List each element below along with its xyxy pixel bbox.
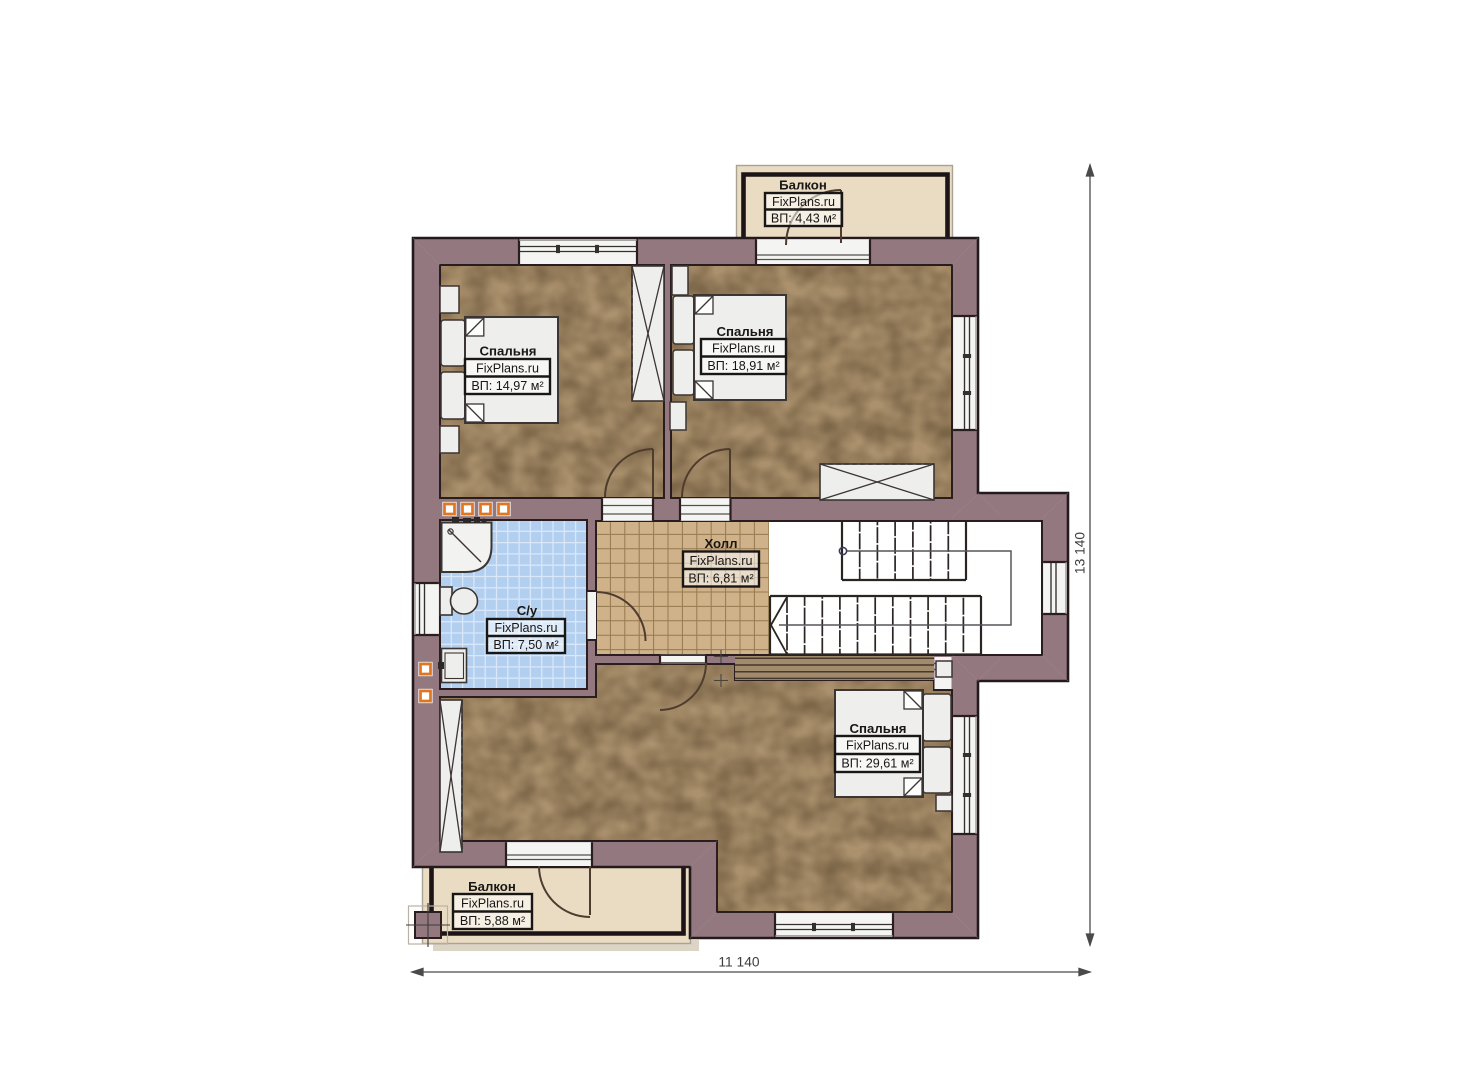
- svg-text:13 140: 13 140: [1073, 532, 1088, 575]
- svg-text:FixPlans.ru: FixPlans.ru: [461, 896, 524, 910]
- svg-text:ВП: 7,50 м²: ВП: 7,50 м²: [493, 638, 558, 652]
- svg-text:FixPlans.ru: FixPlans.ru: [495, 621, 558, 635]
- svg-text:FixPlans.ru: FixPlans.ru: [476, 361, 539, 375]
- svg-text:ВП: 4,43 м²: ВП: 4,43 м²: [771, 211, 836, 225]
- svg-text:FixPlans.ru: FixPlans.ru: [712, 341, 775, 355]
- svg-text:Балкон: Балкон: [468, 879, 516, 894]
- svg-text:Спальня: Спальня: [850, 721, 907, 736]
- svg-text:11 140: 11 140: [718, 955, 760, 970]
- svg-text:ВП: 5,88 м²: ВП: 5,88 м²: [460, 914, 525, 928]
- svg-text:FixPlans.ru: FixPlans.ru: [690, 554, 753, 568]
- svg-text:ВП: 29,61 м²: ВП: 29,61 м²: [841, 757, 913, 771]
- svg-text:Холл: Холл: [704, 536, 737, 551]
- svg-text:ВП: 14,97 м²: ВП: 14,97 м²: [471, 379, 543, 393]
- svg-text:Спальня: Спальня: [717, 324, 774, 339]
- svg-text:ВП: 6,81 м²: ВП: 6,81 м²: [688, 571, 753, 585]
- svg-text:ВП: 18,91 м²: ВП: 18,91 м²: [707, 359, 779, 373]
- svg-text:FixPlans.ru: FixPlans.ru: [846, 739, 909, 753]
- svg-text:Балкон: Балкон: [779, 178, 827, 193]
- svg-text:Спальня: Спальня: [480, 344, 537, 359]
- svg-text:FixPlans.ru: FixPlans.ru: [772, 195, 835, 209]
- svg-text:С/у: С/у: [517, 603, 538, 618]
